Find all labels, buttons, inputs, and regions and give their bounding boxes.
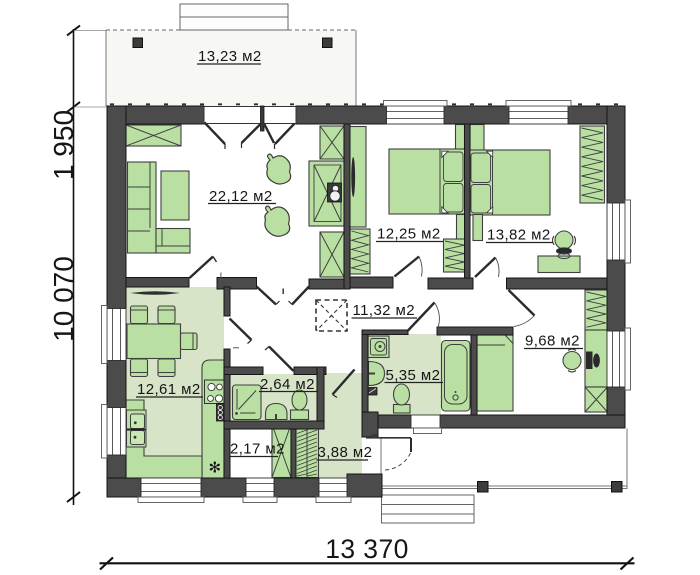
svg-text:✻: ✻ xyxy=(209,460,222,477)
svg-text:11,32 м2: 11,32 м2 xyxy=(353,302,415,319)
svg-text:2,64 м2: 2,64 м2 xyxy=(260,376,315,393)
svg-text:12,25 м2: 12,25 м2 xyxy=(377,226,441,243)
svg-text:22,12 м2: 22,12 м2 xyxy=(209,188,273,205)
svg-text:3,88 м2: 3,88 м2 xyxy=(318,444,373,461)
svg-text:1 950: 1 950 xyxy=(48,110,79,180)
svg-text:13 370: 13 370 xyxy=(325,534,408,564)
svg-text:9,68 м2: 9,68 м2 xyxy=(525,333,580,350)
svg-text:2,17 м2: 2,17 м2 xyxy=(230,441,285,458)
svg-text:12,61 м2: 12,61 м2 xyxy=(137,381,201,398)
svg-text:5,35 м2: 5,35 м2 xyxy=(386,367,441,384)
svg-text:13,82 м2: 13,82 м2 xyxy=(487,227,551,244)
svg-text:13,23 м2: 13,23 м2 xyxy=(198,48,262,65)
svg-text:10 070: 10 070 xyxy=(48,256,79,342)
